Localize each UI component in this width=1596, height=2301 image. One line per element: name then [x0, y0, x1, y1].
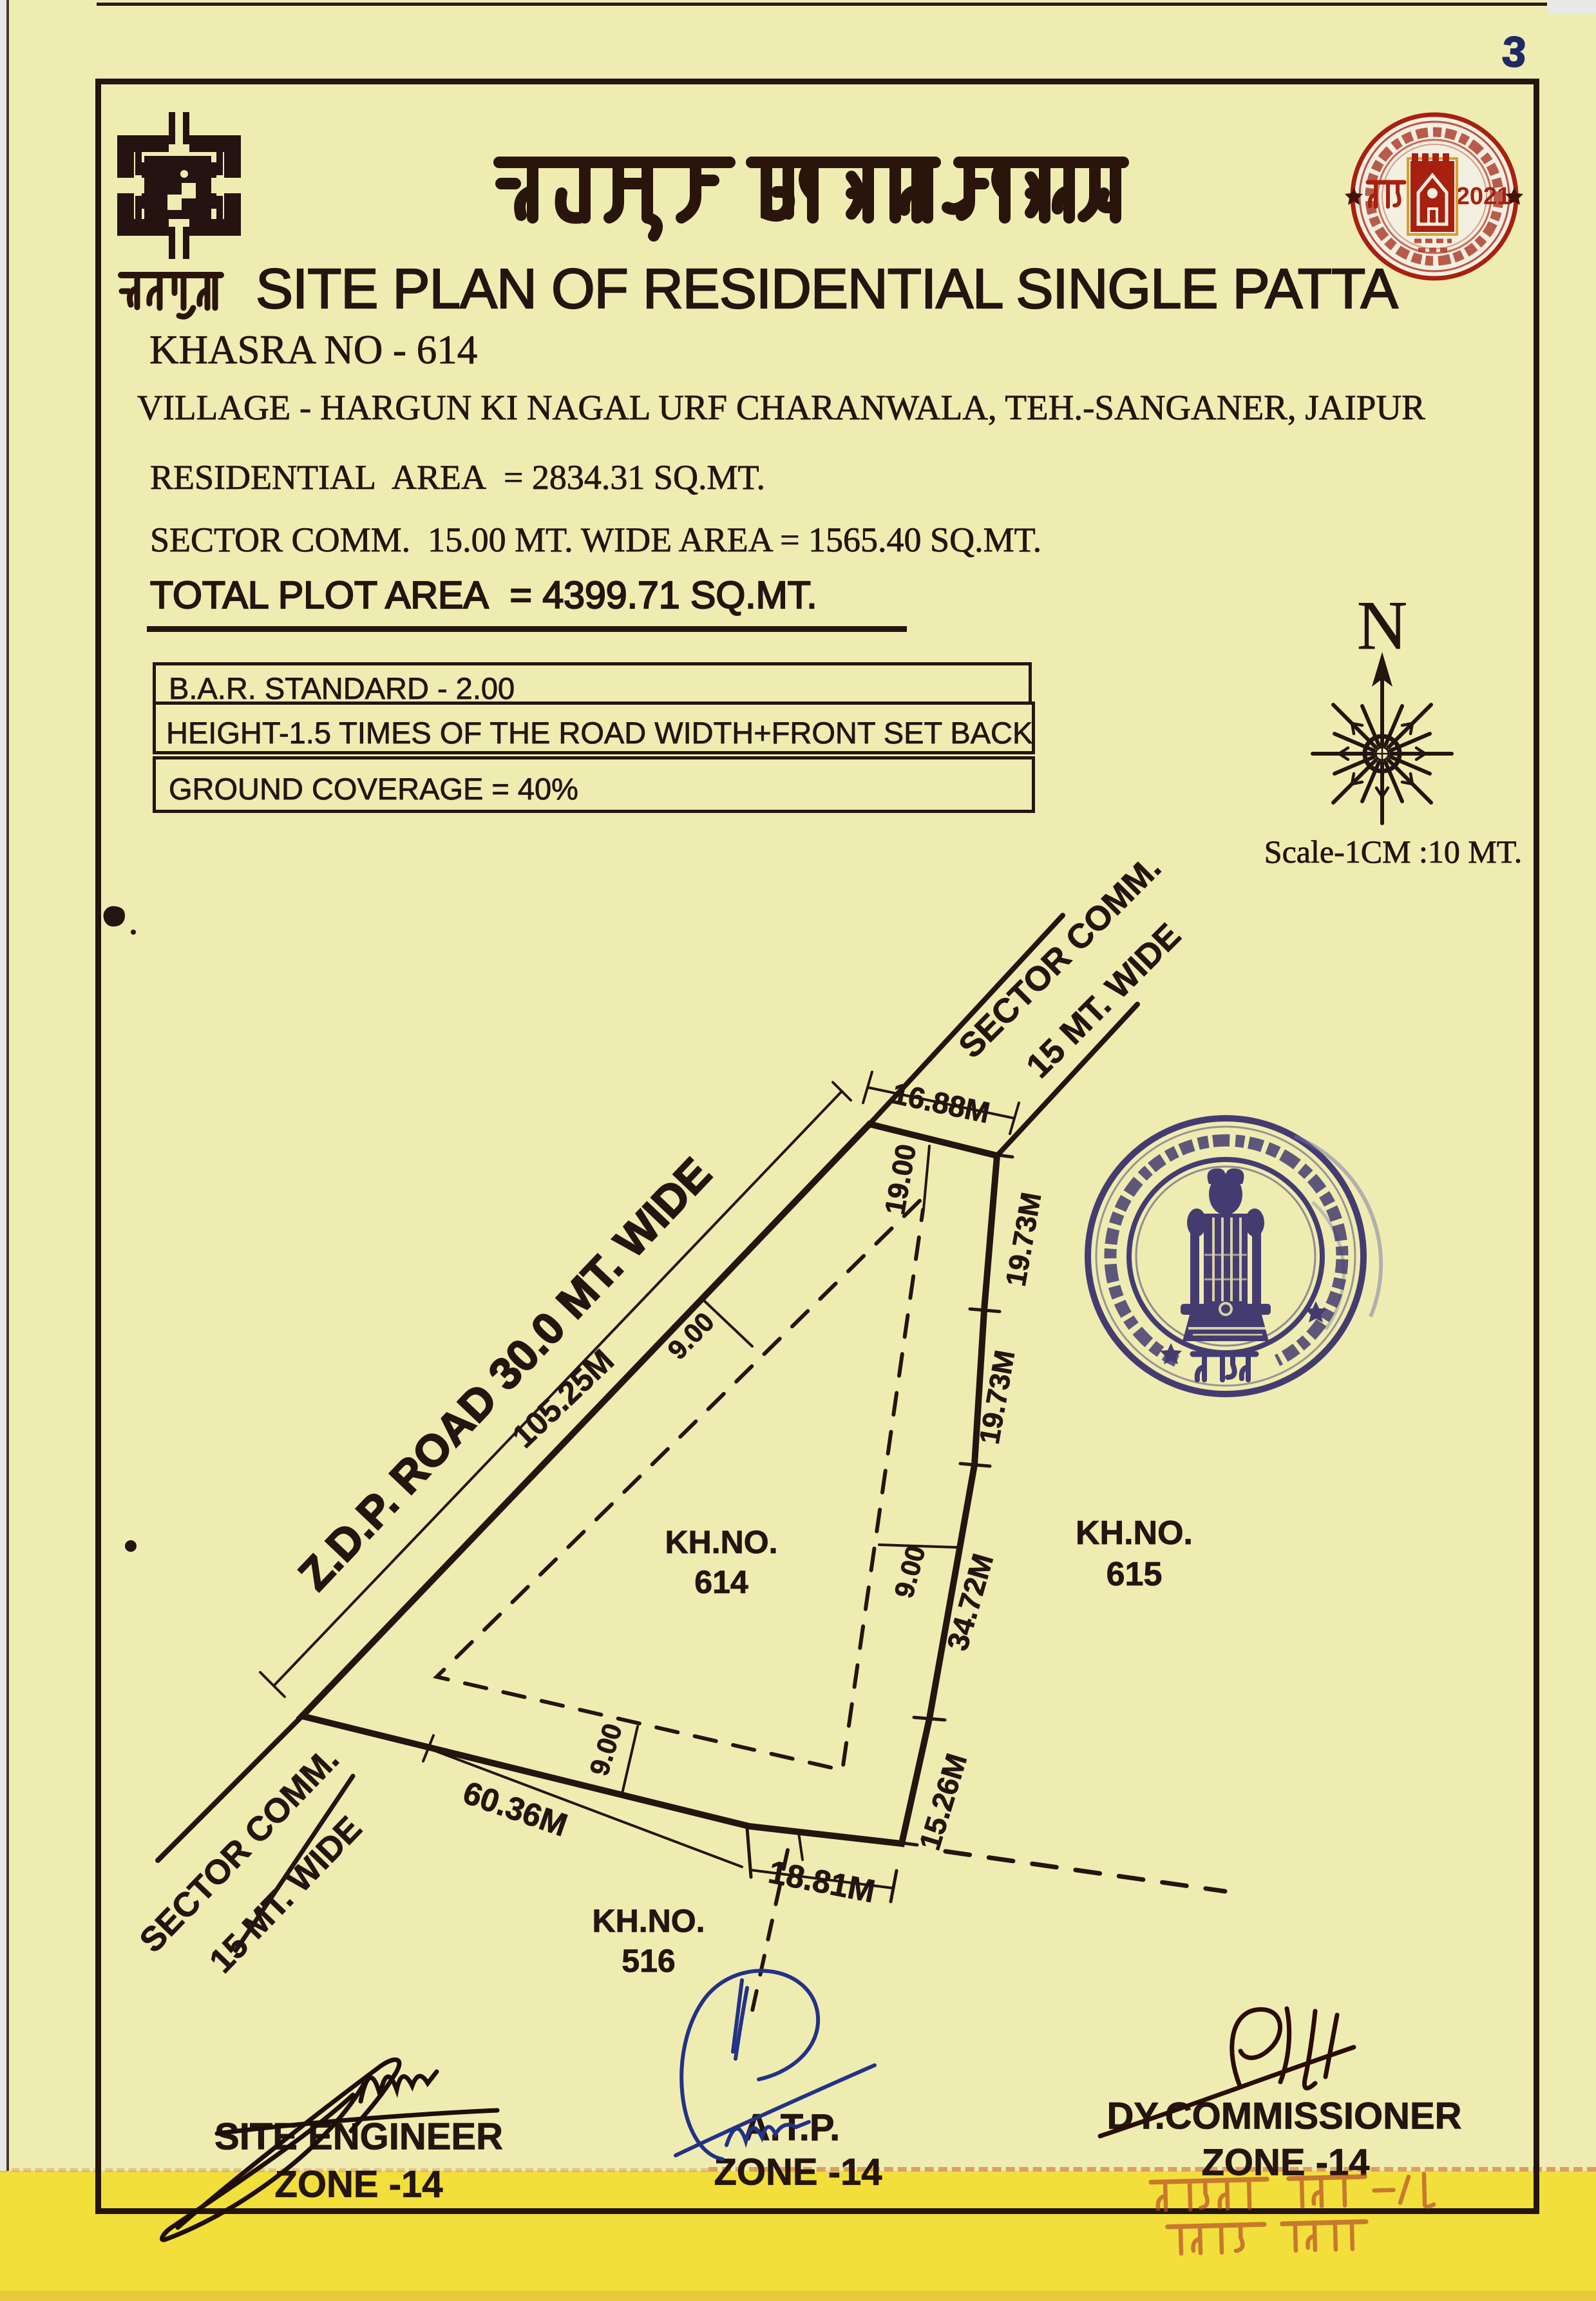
svg-text:2021: 2021: [1456, 183, 1511, 210]
